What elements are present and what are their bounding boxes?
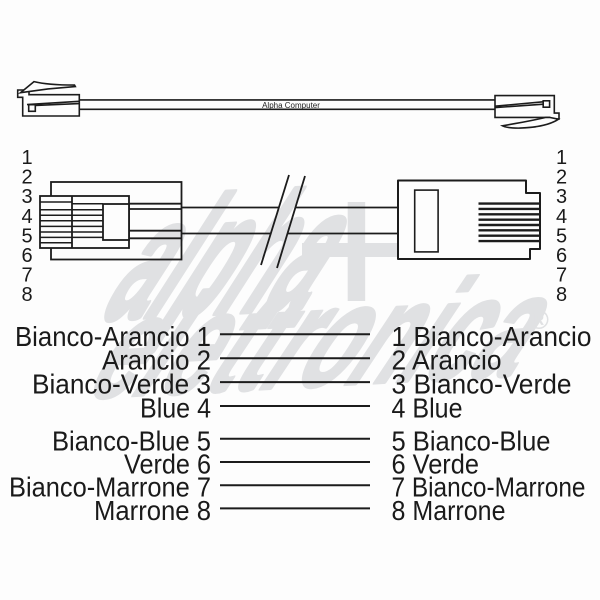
svg-text:4 Blue: 4 Blue — [392, 393, 463, 424]
svg-text:8: 8 — [21, 284, 32, 306]
svg-text:Marrone 8: Marrone 8 — [94, 495, 211, 526]
svg-text:8 Marrone: 8 Marrone — [392, 495, 506, 526]
svg-text:Blue 4: Blue 4 — [140, 393, 211, 424]
svg-text:Alpha Computer: Alpha Computer — [262, 101, 320, 110]
svg-text:8: 8 — [556, 284, 567, 306]
